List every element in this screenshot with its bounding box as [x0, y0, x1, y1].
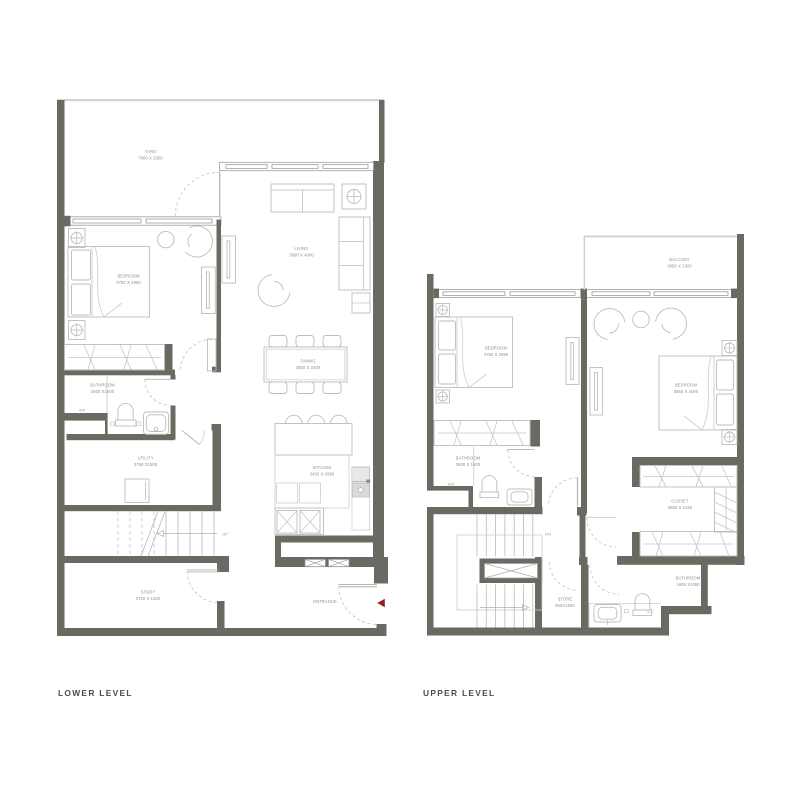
svg-text:7600 X 2600: 7600 X 2600: [138, 156, 163, 161]
svg-text:BATHROOM: BATHROOM: [90, 383, 115, 388]
svg-text:LIVING: LIVING: [294, 246, 308, 251]
svg-text:BEDROOM: BEDROOM: [675, 383, 698, 388]
svg-text:ENTRANCE: ENTRANCE: [313, 599, 337, 604]
svg-text:UP: UP: [223, 531, 229, 536]
svg-text:UPPER LEVEL: UPPER LEVEL: [423, 688, 495, 698]
svg-text:STUDY: STUDY: [141, 590, 156, 595]
svg-text:CLOSET: CLOSET: [671, 499, 689, 504]
svg-text:3750 X 2950: 3750 X 2950: [484, 352, 509, 357]
svg-text:3750 X 2950: 3750 X 2950: [116, 280, 141, 285]
svg-text:UTILITY: UTILITY: [137, 456, 153, 461]
svg-text:3850 X 1300: 3850 X 1300: [667, 264, 692, 269]
svg-text:DINING: DINING: [300, 359, 315, 364]
svg-text:LOWER LEVEL: LOWER LEVEL: [58, 688, 133, 698]
svg-text:2600 X 1500: 2600 X 1500: [456, 462, 481, 467]
svg-text:2650 X 2450: 2650 X 2450: [668, 505, 693, 510]
svg-text:BATHROOM: BATHROOM: [676, 576, 701, 581]
svg-text:BEDROOM: BEDROOM: [485, 346, 508, 351]
svg-text:BEDROOM: BEDROOM: [117, 274, 140, 279]
svg-text:DN: DN: [545, 532, 551, 537]
svg-text:1605 X1650: 1605 X1650: [676, 582, 700, 587]
svg-text:W.M: W.M: [79, 408, 86, 412]
svg-text:W.M: W.M: [448, 482, 455, 486]
svg-text:BATHROOM: BATHROOM: [456, 456, 481, 461]
svg-text:2450 X 2690: 2450 X 2690: [310, 472, 335, 477]
svg-text:3750 X 1600: 3750 X 1600: [136, 596, 161, 601]
svg-text:2600 X1600: 2600 X1600: [91, 389, 115, 394]
svg-text:STORE: STORE: [558, 597, 573, 602]
svg-text:3600 X 4000: 3600 X 4000: [289, 253, 314, 258]
svg-text:KITCHEN: KITCHEN: [313, 465, 332, 470]
svg-text:950X1650: 950X1650: [555, 603, 575, 608]
svg-text:3750 X1500: 3750 X1500: [134, 462, 158, 467]
svg-text:3850 X 4000: 3850 X 4000: [674, 389, 699, 394]
svg-text:3850 X 2400: 3850 X 2400: [296, 365, 321, 370]
svg-text:BALCONY: BALCONY: [669, 257, 690, 262]
svg-text:YARD: YARD: [145, 149, 157, 154]
